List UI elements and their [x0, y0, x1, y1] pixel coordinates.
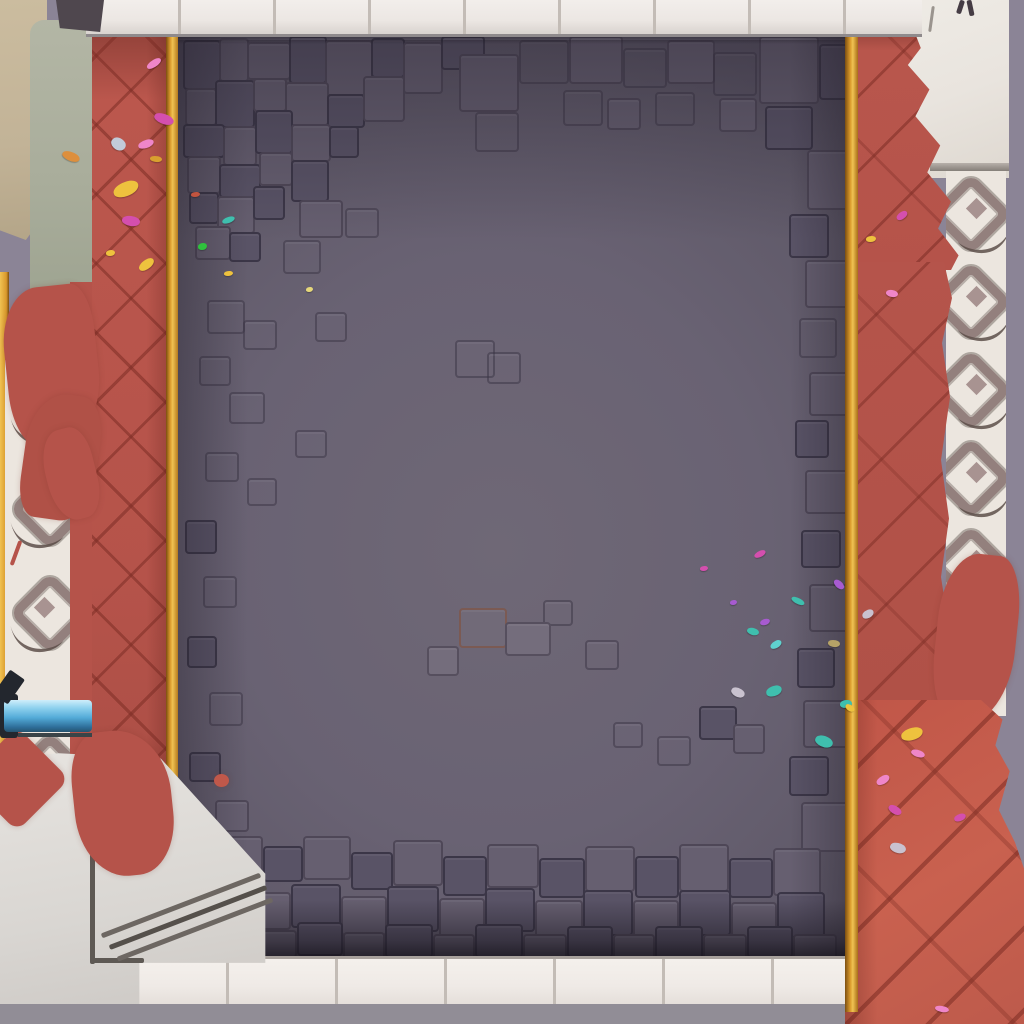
- laurel-swoosh-icon: [7, 624, 67, 658]
- laurel-swoosh-icon: [7, 520, 67, 554]
- floor-shade-upper: [178, 40, 846, 240]
- right-red-brick-mid: [856, 262, 956, 712]
- sage-slab: [30, 20, 98, 312]
- pipe-shadow-line: [18, 733, 92, 737]
- laurel-swoosh-icon: [954, 577, 1006, 611]
- laurel-swoosh-icon: [7, 416, 67, 450]
- laurel-swoosh-icon: [954, 225, 1006, 259]
- bottom-tile-border: [120, 956, 846, 1009]
- right-red-brick-bottom: [845, 700, 1024, 1024]
- laurel-ornament: [946, 441, 1006, 537]
- laurel-swoosh-icon: [954, 401, 1006, 435]
- laurel-ornament: [946, 265, 1006, 361]
- floor-shade-right: [790, 28, 846, 958]
- laurel-swoosh-icon: [954, 665, 1006, 699]
- stone-ledge: [930, 163, 1009, 171]
- laurel-ornament: [946, 617, 1006, 713]
- right-gold-trim: [845, 30, 858, 1012]
- laurel-swoosh-icon: [954, 313, 1006, 347]
- laurel-ornament: [946, 529, 1006, 625]
- bottom-gray-strip: [0, 1004, 858, 1024]
- arena-board[interactable]: [0, 0, 1024, 1024]
- laurel-ornament: [946, 353, 1006, 449]
- floor-shade-bottom: [178, 900, 846, 958]
- top-left-dark-block: [56, 0, 104, 32]
- blue-pipe: [4, 700, 92, 732]
- laurel-swoosh-icon: [954, 489, 1006, 523]
- top-tile-border: [86, 0, 922, 37]
